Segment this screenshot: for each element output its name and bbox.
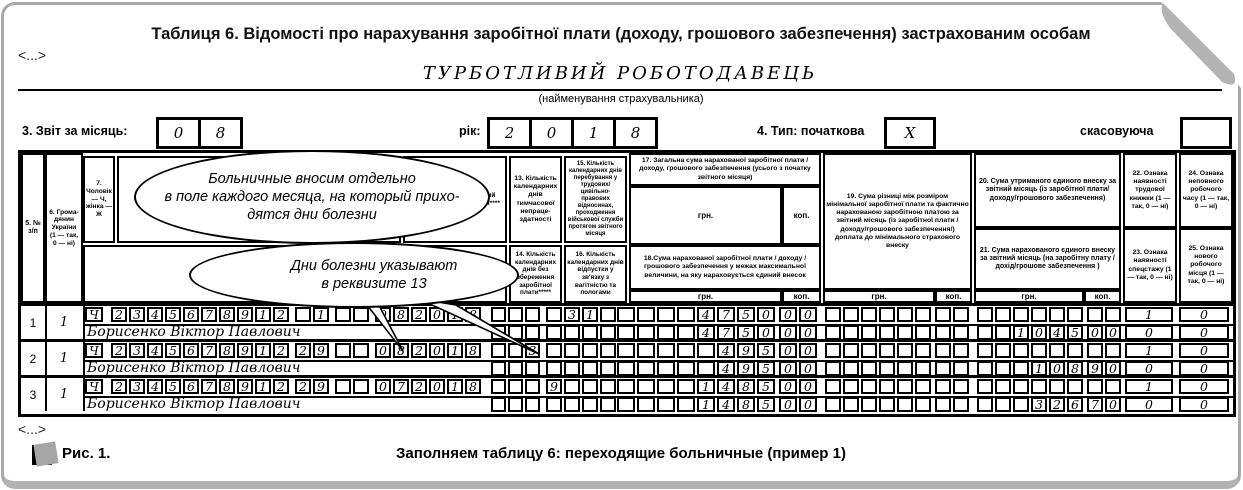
grid-cell (525, 397, 540, 412)
grid-cell (1105, 379, 1121, 394)
person-name: Борисенко Віктор Павлович (87, 360, 300, 376)
grid-cell: 2 (411, 379, 427, 394)
grid-cell (637, 307, 655, 322)
grid-cell (546, 343, 562, 358)
grid-cell (491, 325, 506, 340)
category-cells: 1 (295, 307, 329, 322)
year-label: рік: (459, 124, 481, 138)
cancel-label: скасовуюча (1080, 124, 1153, 138)
accrual-type-cells (335, 307, 369, 322)
grid-cell (564, 343, 580, 358)
type-label: 4. Тип: початкова (757, 124, 864, 138)
grid-cell: 1 (313, 307, 329, 322)
days16-cells (546, 361, 616, 376)
grid-cell (617, 343, 635, 358)
grid-cell (935, 343, 951, 358)
figure-label: Рис. 1. (62, 445, 110, 462)
grid-cell: 8 (219, 343, 235, 358)
grid-cell: 7 (201, 343, 217, 358)
grid-cell (861, 379, 877, 394)
grid-cell (582, 361, 598, 376)
grid-cell (879, 379, 895, 394)
row-number: 3 (21, 378, 47, 411)
grid-cell: 2 (111, 379, 127, 394)
grid-cell: 1 (582, 307, 598, 322)
grid-cell (582, 325, 598, 340)
grid-cell (525, 361, 540, 376)
grid-cell (1013, 397, 1029, 412)
grid-cell: 0 (375, 343, 391, 358)
flag22-cell: 1 (1125, 307, 1173, 322)
grid-cell: 1 (255, 343, 271, 358)
sum19-kop-cells (935, 307, 969, 322)
grid-cell (995, 361, 1011, 376)
sum19b-hrn-cells (825, 361, 931, 376)
grid-cell (564, 397, 580, 412)
grid-cell: 5 (757, 361, 775, 376)
grid-cell (657, 361, 675, 376)
citizen-flag: 1 (45, 342, 85, 375)
grid-cell (582, 379, 598, 394)
grid-cell (677, 343, 695, 358)
grid-cell (1049, 343, 1065, 358)
grid-cell: 0 (799, 361, 817, 376)
header-col17-hrn: грн. (629, 186, 782, 245)
flag24-cell: 0 (1179, 307, 1229, 322)
header-col23: 23. Ознака наявності спецстажу (1 — так,… (1123, 228, 1177, 303)
grid-cell: 9 (313, 379, 329, 394)
sum19b-kop-cells (935, 361, 969, 376)
grid-cell: 1 (1013, 325, 1029, 340)
grid-cell: 8 (393, 343, 409, 358)
grid-cell (897, 397, 913, 412)
sex-cell: Ч (85, 379, 103, 394)
grid-cell: 0 (429, 307, 445, 322)
grid-cell (508, 361, 523, 376)
grid-cell: 9 (546, 379, 562, 394)
grid-cell: 0 (799, 325, 817, 340)
grid-cell: 0 (779, 361, 797, 376)
grid-cell: 4 (697, 307, 715, 322)
grid-cell: 5 (757, 343, 775, 358)
grid-cell: 2 (111, 307, 127, 322)
grid-cell (600, 379, 616, 394)
grid-cell (1087, 307, 1103, 322)
grid-cell (977, 343, 993, 358)
grid-cell (843, 325, 859, 340)
grid-cell (335, 379, 351, 394)
header-col7: 7. Чоловік — Ч, жінка — Ж (83, 156, 115, 243)
grid-cell (1049, 307, 1065, 322)
grid-cell (697, 343, 715, 358)
employer-name: ТУРБОТЛИВИЙ РОБОТОДАВЕЦЬ (423, 63, 817, 84)
days13-cells (491, 307, 540, 322)
grid-cell (977, 307, 993, 322)
row-top-line: Ч 2345678912 29 072018 9 1485 00 1 0 (83, 378, 1233, 398)
sum20-kop-cells (1087, 379, 1121, 394)
header-col21-hrn: грн. (974, 290, 1084, 303)
control-box-cell: 2 (490, 120, 532, 146)
grid-cell: 0 (799, 307, 817, 322)
grid-cell (825, 343, 841, 358)
flag25-cell: 0 (1179, 325, 1229, 340)
grid-cell (995, 307, 1011, 322)
grid-cell: 5 (165, 343, 181, 358)
grid-cell (637, 397, 655, 412)
grid-cell: 5 (1067, 325, 1083, 340)
grid-cell: 0 (779, 325, 797, 340)
category-cells: 29 (295, 379, 329, 394)
sum19b-hrn-cells (825, 325, 931, 340)
grid-cell (1105, 343, 1121, 358)
grid-cell (564, 325, 580, 340)
grid-cell (861, 307, 877, 322)
grid-cell (843, 397, 859, 412)
grid-cell (617, 325, 635, 340)
grid-cell (600, 307, 616, 322)
grid-cell (977, 361, 993, 376)
month-year-cells: 072018 (375, 379, 481, 394)
grid-cell (600, 343, 616, 358)
category-cells: 29 (295, 343, 329, 358)
sum18-hrn-cells: 4750 (617, 325, 775, 340)
grid-cell: 0 (1031, 325, 1047, 340)
sum19b-hrn-cells (825, 397, 931, 412)
grid-cell: 9 (737, 343, 755, 358)
grid-cell: 0 (779, 343, 797, 358)
grid-cell (879, 343, 895, 358)
grid-cell (491, 361, 506, 376)
grid-cell (861, 325, 877, 340)
grid-cell (953, 361, 969, 376)
grid-cell (915, 343, 931, 358)
grid-cell: 2 (273, 379, 289, 394)
grid-cell (953, 325, 969, 340)
header-col18-hrn: грн. (629, 290, 782, 303)
grid-cell (915, 325, 931, 340)
grid-cell: 1 (255, 379, 271, 394)
grid-cell (953, 343, 969, 358)
grid-cell: 3 (525, 343, 540, 358)
row-number: 2 (21, 342, 47, 375)
sum17-kop-cells: 00 (779, 307, 817, 322)
card-number-cells: 2345678912 (111, 307, 289, 322)
grid-cell (995, 379, 1011, 394)
grid-cell (491, 307, 506, 322)
grid-cell (657, 397, 675, 412)
grid-cell (861, 361, 877, 376)
grid-cell: 1 (447, 307, 463, 322)
grid-cell (677, 307, 695, 322)
flag25-cell: 0 (1179, 397, 1229, 412)
days14-cells (491, 361, 540, 376)
sum20-kop-cells (1087, 343, 1121, 358)
grid-cell (353, 307, 369, 322)
grid-cell (491, 379, 506, 394)
header-col19-kop: коп. (935, 290, 972, 303)
grid-cell: 0 (375, 307, 391, 322)
grid-cell: 5 (165, 379, 181, 394)
header-col21-kop: коп. (1084, 290, 1121, 303)
employer-name-line: ТУРБОТЛИВИЙ РОБОТОДАВЕЦЬ (18, 63, 1222, 91)
control-box-cell: 8 (201, 120, 240, 146)
grid-cell: 0 (429, 379, 445, 394)
grid-cell (353, 379, 369, 394)
sum21-hrn-cells: 1045 (977, 325, 1083, 340)
sum17-kop-cells: 00 (779, 343, 817, 358)
accrual-type-cells (335, 379, 369, 394)
header-col13: 13. Кількість календарних днів тимчасово… (509, 156, 562, 243)
grid-cell: 2 (295, 379, 311, 394)
row-number: 1 (21, 306, 47, 339)
grid-cell (897, 343, 913, 358)
grid-cell (1031, 307, 1047, 322)
grid-cell (843, 307, 859, 322)
grid-cell: 0 (1105, 397, 1121, 412)
sex-cell: Ч (85, 307, 103, 322)
grid-cell (1067, 307, 1083, 322)
sum18-kop-cells: 00 (779, 325, 817, 340)
grid-cell (843, 379, 859, 394)
days13-cells (491, 379, 540, 394)
sum21-kop-cells: 00 (1087, 325, 1121, 340)
header-col22: 22. Ознака наявності трудової книжки (1 … (1123, 153, 1177, 228)
grid-cell (600, 361, 616, 376)
grid-cell: 2 (1049, 397, 1065, 412)
grid-cell: 4 (147, 343, 163, 358)
sum17-kop-cells: 00 (779, 379, 817, 394)
grid-cell: 4 (717, 361, 735, 376)
grid-cell (1067, 379, 1083, 394)
grid-cell: 8 (465, 307, 481, 322)
grid-cell (1049, 379, 1065, 394)
grid-cell: 0 (757, 307, 775, 322)
grid-cell (843, 343, 859, 358)
grid-cell: 8 (465, 379, 481, 394)
grid-cell (935, 361, 951, 376)
grid-cell: 0 (779, 307, 797, 322)
header-col20: 20. Сума утриманого єдиного внеску за зв… (974, 153, 1121, 228)
employer-caption: (найменування страхувальника) (4, 93, 1238, 105)
grid-cell: 5 (757, 397, 775, 412)
row-bottom-line: Борисенко Віктор Павлович 1485 00 326 70… (83, 396, 1233, 411)
grid-cell: 2 (111, 343, 127, 358)
grid-cell (977, 379, 993, 394)
grid-cell (953, 379, 969, 394)
citizen-flag: 1 (45, 306, 85, 339)
grid-cell: 1 (447, 379, 463, 394)
sum17-hrn-cells: 1485 (617, 379, 775, 394)
flag22-cell: 1 (1125, 343, 1173, 358)
report-month-label: 3. Звіт за місяць: (22, 124, 127, 138)
grid-cell: 7 (717, 307, 735, 322)
grid-cell: 4 (147, 307, 163, 322)
sum17-hrn-cells: 4750 (617, 307, 775, 322)
grid-cell: 0 (779, 379, 797, 394)
snip-top: <...> (18, 47, 46, 63)
grid-cell (953, 307, 969, 322)
row-top-line: Ч 2345678912 29 082018 3 495 00 1 0 (83, 342, 1233, 362)
sum19-hrn-cells (825, 379, 931, 394)
control-box-cell: 1 (574, 120, 616, 146)
grid-cell: 2 (411, 343, 427, 358)
grid-cell: 6 (183, 379, 199, 394)
grid-cell (582, 397, 598, 412)
grid-cell: 2 (273, 343, 289, 358)
grid-cell (1013, 361, 1029, 376)
grid-cell: 0 (799, 343, 817, 358)
grid-cell: 8 (465, 343, 481, 358)
grid-cell: 8 (737, 379, 755, 394)
flag23-cell: 0 (1125, 361, 1173, 376)
grid-cell (1031, 379, 1047, 394)
cancel-value (1183, 120, 1229, 146)
grid-cell (977, 325, 993, 340)
grid-cell (508, 379, 523, 394)
grid-cell: 5 (737, 307, 755, 322)
grid-cell (897, 361, 913, 376)
grid-cell (1013, 379, 1029, 394)
grid-cell: 7 (393, 379, 409, 394)
grid-cell: 2 (411, 307, 427, 322)
grid-cell: 4 (717, 397, 735, 412)
sum19-kop-cells (935, 379, 969, 394)
callout-line: Дни болезни указывают (291, 257, 458, 275)
grid-cell (953, 397, 969, 412)
grid-cell (637, 343, 655, 358)
grid-cell (353, 343, 369, 358)
grid-cell: 6 (183, 307, 199, 322)
sum19-kop-cells (935, 343, 969, 358)
grid-cell (1013, 343, 1029, 358)
days16-cells (546, 397, 616, 412)
grid-cell (1087, 379, 1103, 394)
days14-cells (491, 397, 540, 412)
grid-cell (915, 379, 931, 394)
row-bottom-line: Борисенко Віктор Павлович 495 00 108 90 … (83, 360, 1233, 375)
figure-caption: Заполняем таблицу 6: переходящие больнич… (4, 445, 1238, 462)
grid-cell: 9 (237, 343, 253, 358)
grid-cell: 0 (779, 397, 797, 412)
header-col17: 17. Загальна сума нарахованої заробітної… (629, 153, 821, 186)
page: Таблиця 6. Відомості про нарахування зар… (0, 0, 1243, 490)
page-title: Таблиця 6. Відомості про нарахування зар… (4, 25, 1238, 44)
grid-cell (657, 343, 675, 358)
header-col24: 24. Ознака неповного робочого часу (1 — … (1179, 153, 1233, 228)
days15-cells: 9 (546, 379, 616, 394)
grid-cell (508, 307, 523, 322)
grid-cell (582, 343, 598, 358)
callout-field13: Дни болезни указывают в реквизите 13 (189, 242, 519, 308)
grid-cell (677, 379, 695, 394)
grid-cell (617, 379, 635, 394)
grid-cell (564, 361, 580, 376)
grid-cell (825, 325, 841, 340)
flag25-cell: 0 (1179, 361, 1229, 376)
days15-cells: 31 (546, 307, 616, 322)
days13-cells: 3 (491, 343, 540, 358)
grid-cell (1105, 307, 1121, 322)
control-box-cell: 0 (532, 120, 574, 146)
grid-cell (637, 325, 655, 340)
grid-cell: 0 (375, 379, 391, 394)
grid-cell: 4 (717, 379, 735, 394)
grid-cell: 3 (129, 343, 145, 358)
grid-cell (995, 343, 1011, 358)
grid-cell: 1 (697, 397, 715, 412)
cancel-box (1180, 117, 1232, 149)
control-box-cell: 0 (159, 120, 201, 146)
sum21-hrn-cells: 326 (977, 397, 1083, 412)
grid-cell (600, 325, 616, 340)
grid-cell: 9 (237, 379, 253, 394)
callout-sick-months: Больничные вносим отдельно в поле каждог… (134, 150, 490, 244)
month-year-cells: 082018 (375, 307, 481, 322)
grid-cell: 4 (717, 343, 735, 358)
grid-cell: 2 (295, 343, 311, 358)
grid-cell: 6 (183, 343, 199, 358)
card-number-cells: 2345678912 (111, 379, 289, 394)
header-col15: 15. Кількість календарних днів перебуван… (564, 156, 627, 243)
callout-line: дятся дни болезни (247, 206, 377, 224)
grid-cell: 9 (737, 361, 755, 376)
sum19-hrn-cells (825, 307, 931, 322)
grid-cell: 3 (1031, 397, 1047, 412)
days15-cells (546, 343, 616, 358)
header-col16: 16. Кількість календарних днів відпустки… (564, 245, 627, 303)
grid-cell (825, 307, 841, 322)
grid-cell: 0 (799, 379, 817, 394)
grid-cell (677, 397, 695, 412)
year-boxes: 2018 (487, 117, 658, 149)
grid-cell: 9 (313, 343, 329, 358)
grid-cell: 8 (219, 379, 235, 394)
flag23-cell: 0 (1125, 325, 1173, 340)
snip-bottom: <...> (18, 421, 46, 437)
grid-cell (677, 325, 695, 340)
header-col5: 5. № з/п (21, 153, 45, 303)
grid-cell (657, 307, 675, 322)
grid-cell: 0 (429, 343, 445, 358)
header-col19-hrn: грн. (823, 290, 935, 303)
days14-cells (491, 325, 540, 340)
grid-cell: 4 (697, 325, 715, 340)
grid-cell: 0 (1105, 361, 1121, 376)
grid-cell (915, 307, 931, 322)
report-month-boxes: 08 (156, 117, 243, 149)
header-col21: 21. Сума нарахованого єдиного внеску за … (974, 228, 1121, 290)
grid-cell (897, 307, 913, 322)
grid-cell: 5 (757, 379, 775, 394)
person-name: Борисенко Віктор Павлович (87, 324, 300, 340)
grid-cell (861, 397, 877, 412)
grid-cell (508, 325, 523, 340)
grid-cell (295, 307, 311, 322)
header-col18: 18.Сума нарахованої заробітної плати / д… (629, 245, 821, 290)
grid-cell (617, 397, 635, 412)
flag22-cell: 1 (1125, 379, 1173, 394)
grid-cell (861, 343, 877, 358)
header-col18-kop: коп. (782, 290, 821, 303)
grid-cell (897, 379, 913, 394)
sum18-hrn-cells: 495 (617, 361, 775, 376)
grid-cell: 8 (1067, 361, 1083, 376)
grid-cell: 7 (201, 379, 217, 394)
grid-cell (525, 379, 540, 394)
grid-cell (617, 307, 635, 322)
document-card: Таблиця 6. Відомості про нарахування зар… (1, 2, 1241, 489)
grid-cell: 8 (737, 397, 755, 412)
